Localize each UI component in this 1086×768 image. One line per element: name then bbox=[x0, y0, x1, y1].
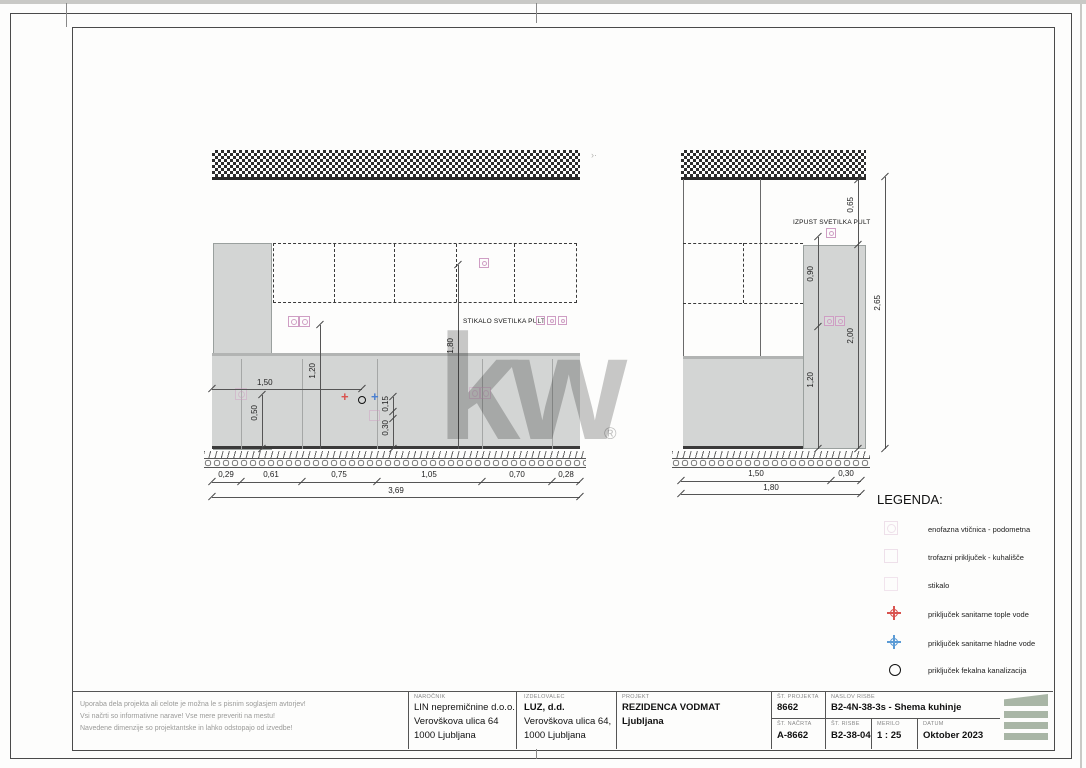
title-block-divider bbox=[408, 691, 409, 749]
ceiling-hatch bbox=[681, 150, 866, 180]
socket-icon bbox=[299, 316, 310, 327]
total-dim: 1,80 bbox=[756, 483, 786, 492]
title-block-divider bbox=[516, 691, 517, 749]
cold-water-connection-icon bbox=[887, 635, 901, 649]
legend-item-label: stikalo bbox=[928, 581, 949, 590]
title-block-top-line bbox=[72, 691, 1053, 692]
luz-logo-bar bbox=[1004, 722, 1048, 729]
dimension-total bbox=[212, 497, 580, 498]
dim-150: 1,50 bbox=[257, 378, 273, 387]
floor-hatch bbox=[672, 451, 870, 459]
upper-cabinets-dashed bbox=[273, 243, 577, 303]
chain-dim: 0,70 bbox=[502, 470, 532, 479]
dimension-line bbox=[320, 325, 321, 449]
cabinet-divider bbox=[241, 359, 242, 449]
cabinet-line bbox=[760, 179, 761, 356]
dimension-line bbox=[262, 395, 263, 449]
upper-cabinet-dashed bbox=[743, 243, 744, 303]
author-label: IZDELOVALEC bbox=[524, 694, 565, 700]
cold-water-icon: + bbox=[371, 393, 379, 401]
disclaimer-line: Vsi načrti so informativne narave! Vse m… bbox=[80, 713, 275, 720]
dim-015: 0,15 bbox=[381, 396, 390, 412]
dimension-line bbox=[212, 389, 362, 390]
project-number: 8662 bbox=[777, 702, 798, 713]
drawing-sheet: ›· STIKALO SVETILKA PULT bbox=[0, 0, 1086, 768]
dim-050: 0,50 bbox=[250, 405, 259, 421]
socket-icon bbox=[835, 316, 845, 326]
dim-030: 0,30 bbox=[381, 420, 390, 436]
author-name: LUZ, d.d. bbox=[524, 702, 565, 713]
cabinet-divider bbox=[394, 244, 395, 302]
dim-265: 2,65 bbox=[873, 295, 882, 311]
dimension-line bbox=[818, 237, 819, 449]
title-block-divider bbox=[825, 691, 826, 749]
socket-icon bbox=[288, 316, 299, 327]
hot-water-connection-icon bbox=[887, 606, 901, 620]
dim-120: 1,20 bbox=[806, 372, 815, 388]
legend-title: LEGENDA: bbox=[877, 492, 943, 507]
author-city: 1000 Ljubljana bbox=[524, 730, 586, 741]
cabinet-divider bbox=[334, 244, 335, 302]
title-block-row-divider bbox=[771, 718, 1000, 719]
fold-mark bbox=[66, 3, 67, 27]
fold-mark bbox=[536, 749, 537, 759]
chain-dim: 0,30 bbox=[831, 469, 861, 478]
floor-insulation-hatch bbox=[672, 459, 870, 468]
scan-edge-right bbox=[1080, 0, 1082, 768]
dimension-chain bbox=[212, 482, 580, 483]
project-label: PROJEKT bbox=[622, 694, 649, 700]
switch-icon bbox=[884, 577, 898, 591]
chain-dim: 0,29 bbox=[211, 470, 241, 479]
plan-number-label: ŠT. NAČRTA bbox=[777, 721, 812, 727]
dimension-total bbox=[681, 494, 861, 495]
base-cabinet bbox=[683, 356, 803, 449]
kw-watermark: kw bbox=[437, 312, 617, 462]
cabinet-divider bbox=[377, 359, 378, 449]
project-name: REZIDENCA VODMAT bbox=[622, 702, 720, 713]
three-phase-connection-icon bbox=[884, 549, 898, 563]
luz-logo-bar bbox=[1004, 711, 1048, 718]
title-block-divider bbox=[771, 691, 772, 749]
author-street: Verovškova ulica 64, bbox=[524, 716, 611, 727]
legend-item-label: trofazni priključek - kuhališče bbox=[928, 553, 1024, 562]
cabinet-divider bbox=[456, 244, 457, 302]
disclaimer-line: Navedene dimenzije so projektantske in l… bbox=[80, 725, 292, 732]
sewage-connection-icon bbox=[889, 664, 901, 676]
chain-dim: 0,28 bbox=[551, 470, 581, 479]
sewage-icon bbox=[358, 396, 366, 404]
chain-dim: 0,61 bbox=[256, 470, 286, 479]
legend-item-label: priključek sanitarne hladne vode bbox=[928, 639, 1035, 648]
disclaimer-line: Uporaba dela projekta ali celote je možn… bbox=[80, 701, 306, 708]
scan-edge-top bbox=[0, 0, 1086, 4]
single-phase-socket-icon bbox=[884, 521, 898, 535]
client-city: 1000 Ljubljana bbox=[414, 730, 476, 741]
dimension-chain bbox=[681, 481, 861, 482]
date-label: DATUM bbox=[923, 721, 944, 727]
ceiling-hatch bbox=[212, 150, 580, 180]
title-block-divider bbox=[917, 718, 918, 749]
dimension-line bbox=[858, 180, 859, 449]
dim-065: 0,65 bbox=[846, 197, 855, 213]
socket-icon bbox=[479, 258, 489, 268]
dimension-line bbox=[885, 177, 886, 449]
scale-label: MERILO bbox=[877, 721, 900, 727]
cabinet-divider bbox=[302, 359, 303, 449]
upper-cabinet-dashed bbox=[683, 303, 803, 304]
legend-item-label: enofazna vtičnica - podometna bbox=[928, 525, 1030, 534]
client-street: Verovškova ulica 64 bbox=[414, 716, 499, 727]
chain-dim: 1,05 bbox=[414, 470, 444, 479]
client-label: NAROČNIK bbox=[414, 694, 445, 700]
legend-item-label: priključek fekalna kanalizacija bbox=[928, 666, 1026, 675]
cabinet-divider bbox=[514, 244, 515, 302]
registered-trademark-icon: ® bbox=[604, 424, 617, 444]
project-number-label: ŠT. PROJEKTA bbox=[777, 694, 819, 700]
outlet-light-counter-label: IZPUST SVETILKA PULT bbox=[793, 219, 865, 226]
hot-water-icon: + bbox=[341, 393, 349, 401]
drawing-title-label: NASLOV RISBE bbox=[831, 694, 875, 700]
plan-number: A-8662 bbox=[777, 730, 808, 741]
scale-value: 1 : 25 bbox=[877, 730, 901, 741]
drawing-number: B2-38-04 bbox=[831, 730, 871, 741]
scan-artifact: ›· bbox=[591, 150, 597, 160]
socket-icon bbox=[826, 228, 836, 238]
total-dim: 3,69 bbox=[381, 486, 411, 495]
drawing-number-label: ŠT. RISBE bbox=[831, 721, 860, 727]
client-name: LIN nepremičnine d.o.o. bbox=[414, 702, 515, 713]
dimension-line bbox=[393, 397, 394, 449]
drawing-title: B2-4N-38-3s - Shema kuhinje bbox=[831, 702, 961, 713]
title-block-divider bbox=[616, 691, 617, 749]
chain-dim: 0,75 bbox=[324, 470, 354, 479]
fold-mark bbox=[536, 3, 537, 23]
socket-icon bbox=[369, 410, 380, 421]
legend-item-label: priključek sanitarne tople vode bbox=[928, 610, 1029, 619]
dim-200: 2,00 bbox=[846, 328, 855, 344]
luz-logo-bar bbox=[1004, 733, 1048, 740]
socket-icon bbox=[824, 316, 834, 326]
chain-dim: 1,50 bbox=[741, 469, 771, 478]
date-value: Oktober 2023 bbox=[923, 730, 983, 741]
dim-090: 0,90 bbox=[806, 266, 815, 282]
project-city: Ljubljana bbox=[622, 716, 664, 727]
dim-120: 1,20 bbox=[308, 363, 317, 379]
title-block-divider bbox=[871, 718, 872, 749]
